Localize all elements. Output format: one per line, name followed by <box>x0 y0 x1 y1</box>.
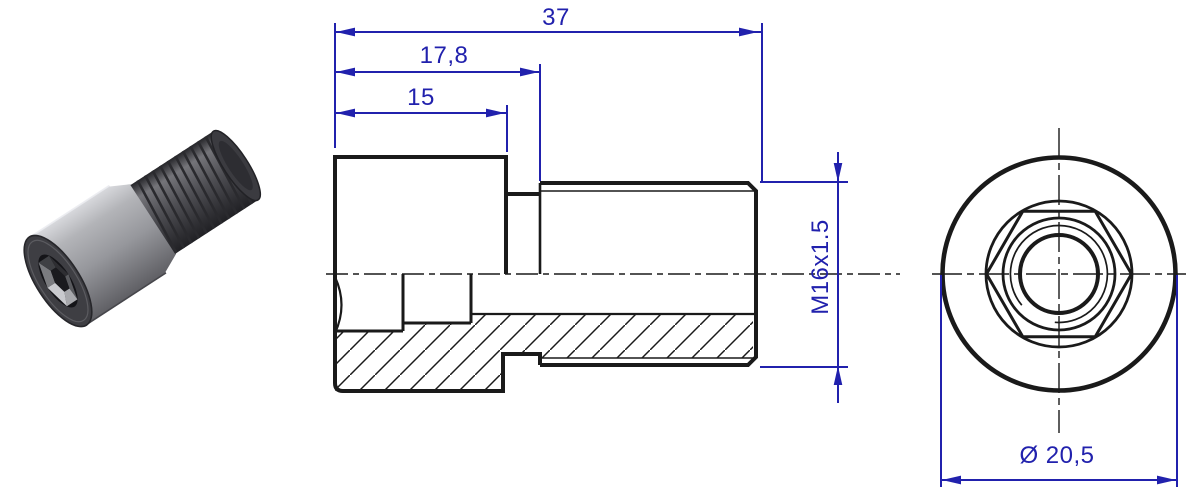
dim-label-overall-length: 37 <box>542 4 570 31</box>
dim-label-head-length: 15 <box>407 84 435 111</box>
hatch-neck <box>503 314 540 354</box>
hatch-under-bore-a <box>403 323 471 391</box>
hatch-head-step <box>471 314 503 391</box>
dim-label-length-to-thread: 17,8 <box>420 42 469 69</box>
dim-label-head-diameter: Ø 20,5 <box>1019 442 1094 469</box>
drawing-svg: 37 17,8 15 M16x1.5 Ø 20,5 <box>0 0 1200 498</box>
hatch-under-socket <box>335 332 403 391</box>
dim-label-thread-spec: M16x1.5 <box>807 219 834 315</box>
technical-drawing-canvas: 37 17,8 15 M16x1.5 Ø 20,5 <box>0 0 1200 498</box>
hatch-thread-wall <box>540 314 753 358</box>
